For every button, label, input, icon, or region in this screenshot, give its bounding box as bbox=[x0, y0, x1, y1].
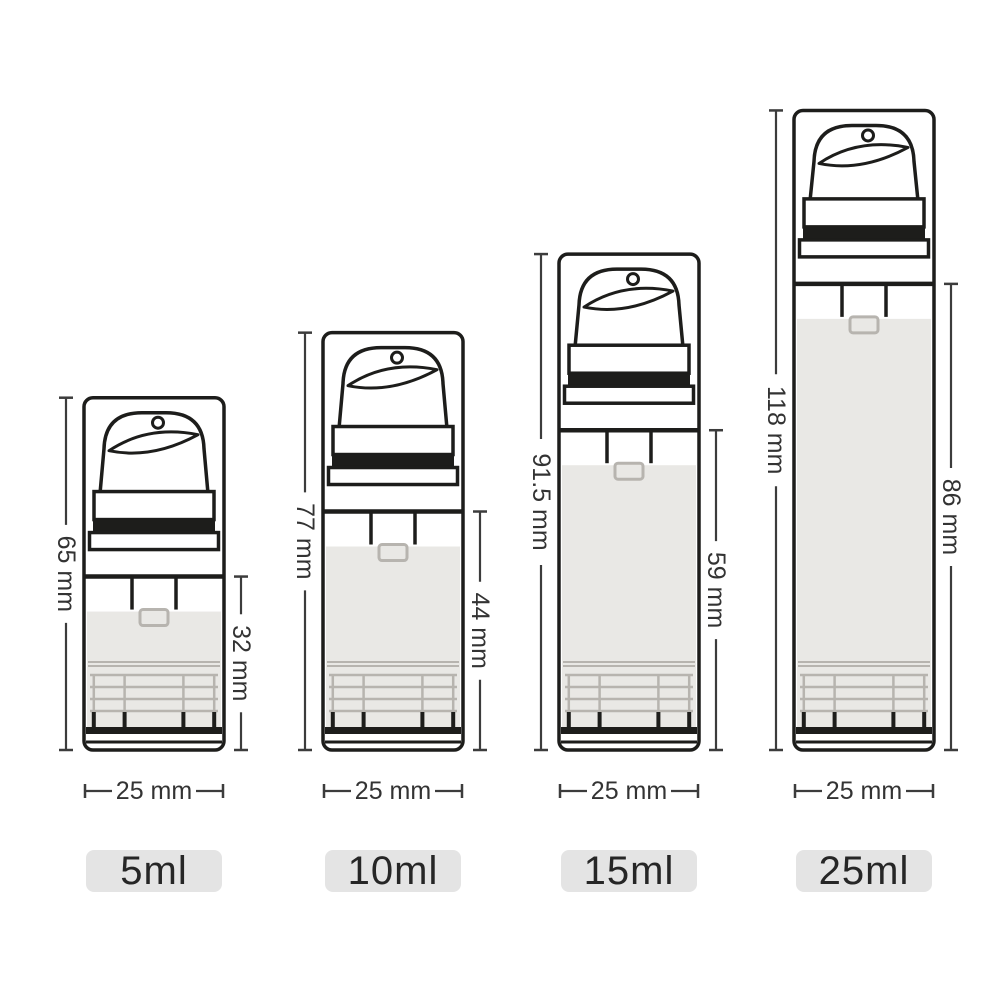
dim-label-body-height: 44 mm bbox=[466, 593, 494, 669]
dim-label-total-height: 118 mm bbox=[762, 386, 790, 474]
bottle-10ml bbox=[323, 333, 463, 750]
dim-total-height-10ml: 77 mm bbox=[291, 333, 319, 750]
size-badge-5ml: 5ml bbox=[86, 850, 222, 892]
dim-label-total-height: 77 mm bbox=[291, 503, 319, 579]
collar-dark-band bbox=[332, 455, 454, 468]
dim-width-25ml: 25 mm bbox=[795, 777, 933, 805]
collar-lower-ring bbox=[329, 468, 458, 485]
collar-dark-band bbox=[803, 227, 925, 240]
dim-label-body-height: 59 mm bbox=[702, 552, 730, 628]
dim-body-height-25ml: 86 mm bbox=[937, 284, 965, 750]
dim-total-height-5ml: 65 mm bbox=[52, 398, 80, 750]
base-band bbox=[86, 727, 222, 734]
dim-label-width: 25 mm bbox=[355, 777, 431, 805]
bottle-25ml bbox=[794, 110, 934, 750]
dim-label-body-height: 86 mm bbox=[937, 479, 965, 555]
base-band bbox=[561, 727, 697, 734]
dim-label-total-height: 91.5 mm bbox=[527, 453, 555, 550]
collar-lower-ring bbox=[800, 240, 929, 257]
pump-collar bbox=[333, 427, 453, 455]
dim-body-height-15ml: 59 mm bbox=[702, 430, 730, 750]
base-band bbox=[796, 727, 932, 734]
pump-orifice bbox=[153, 417, 164, 428]
dim-total-height-15ml: 91.5 mm bbox=[527, 254, 555, 750]
pump-orifice bbox=[863, 130, 874, 141]
bottle-15ml bbox=[559, 254, 699, 750]
dim-label-total-height: 65 mm bbox=[52, 536, 80, 612]
dim-width-5ml: 25 mm bbox=[85, 777, 223, 805]
collar-dark-band bbox=[568, 373, 690, 386]
dim-body-height-5ml: 32 mm bbox=[227, 577, 255, 750]
dim-label-body-height: 32 mm bbox=[227, 625, 255, 701]
collar-dark-band bbox=[93, 520, 215, 533]
dip-tube-cup bbox=[850, 317, 878, 333]
dim-label-width: 25 mm bbox=[826, 777, 902, 805]
dim-body-height-10ml: 44 mm bbox=[466, 512, 494, 750]
dip-tube-cup bbox=[140, 610, 168, 626]
base-band bbox=[325, 727, 461, 734]
dim-label-width: 25 mm bbox=[591, 777, 667, 805]
dim-label-width: 25 mm bbox=[116, 777, 192, 805]
size-badge-10ml: 10ml bbox=[325, 850, 461, 892]
dip-tube-cup bbox=[379, 545, 407, 561]
collar-lower-ring bbox=[90, 533, 219, 550]
content-fill bbox=[87, 612, 221, 727]
bottle-5ml bbox=[84, 398, 224, 750]
pump-orifice bbox=[392, 352, 403, 363]
pump-collar bbox=[569, 345, 689, 373]
dim-width-10ml: 25 mm bbox=[324, 777, 462, 805]
size-badge-15ml: 15ml bbox=[561, 850, 697, 892]
collar-lower-ring bbox=[565, 386, 694, 403]
dim-width-15ml: 25 mm bbox=[560, 777, 698, 805]
pump-orifice bbox=[628, 274, 639, 285]
size-badge-25ml: 25ml bbox=[796, 850, 932, 892]
pump-collar bbox=[94, 492, 214, 520]
bottle-size-diagram: 65 mm32 mm25 mm77 mm44 mm25 mm91.5 mm59 … bbox=[0, 0, 1000, 1000]
dip-tube-cup bbox=[615, 463, 643, 479]
dim-total-height-25ml: 118 mm bbox=[762, 110, 790, 750]
pump-collar bbox=[804, 199, 924, 227]
